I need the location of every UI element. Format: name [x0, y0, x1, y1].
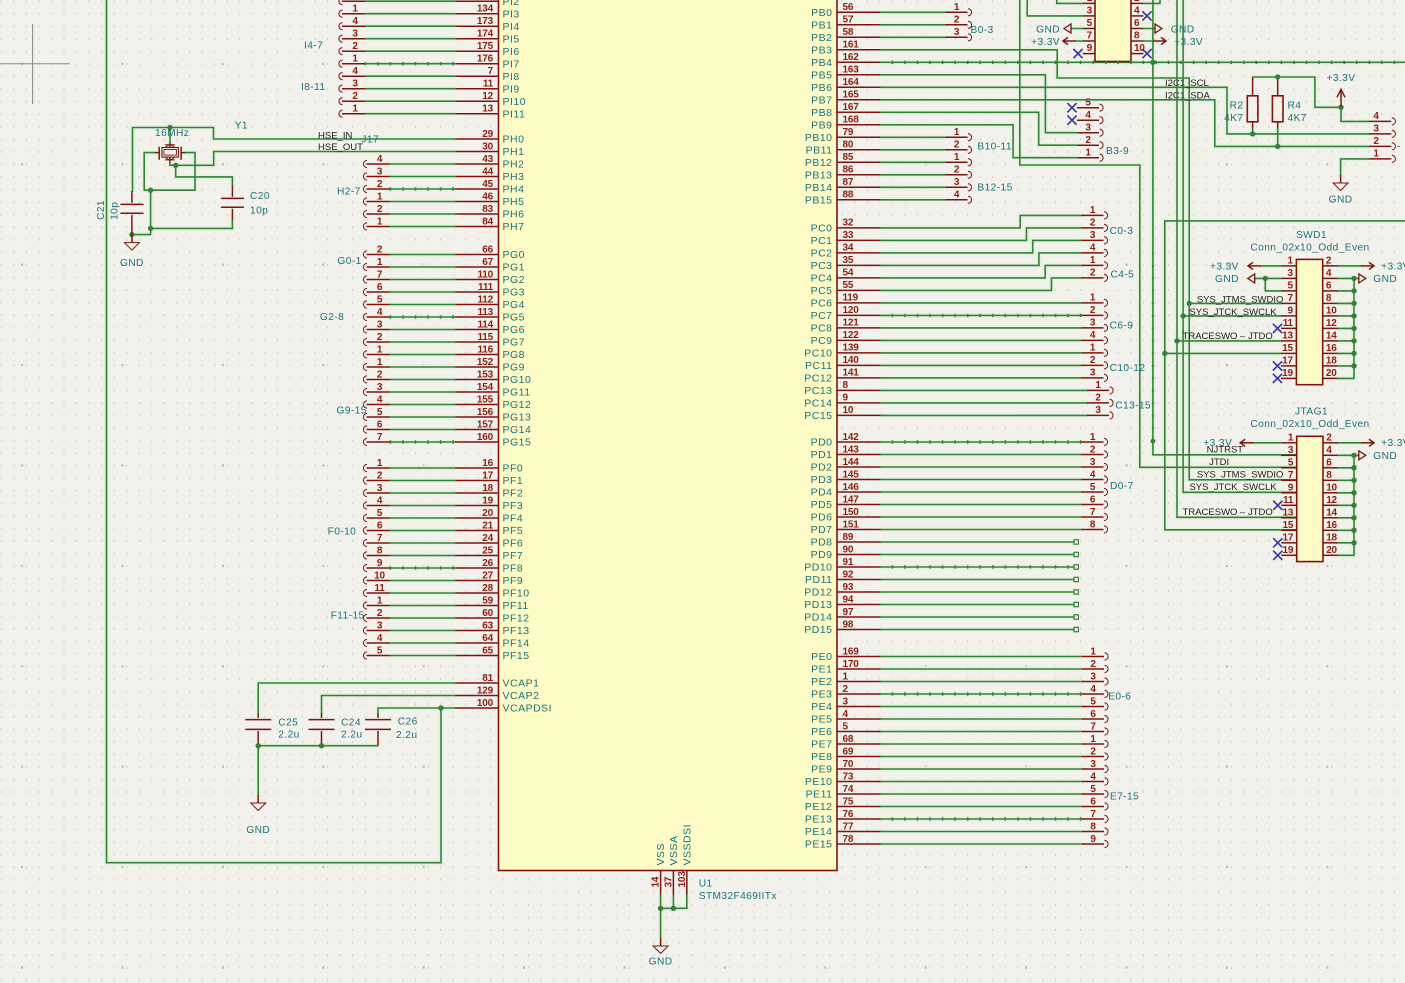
svg-text:25: 25 [482, 545, 493, 556]
svg-text:PF1: PF1 [503, 475, 524, 487]
svg-text:PG15: PG15 [503, 437, 532, 449]
svg-text:8: 8 [1090, 519, 1096, 530]
svg-text:13: 13 [482, 104, 493, 115]
svg-text:32: 32 [843, 218, 854, 229]
svg-text:154: 154 [477, 382, 494, 393]
svg-text:2: 2 [1090, 268, 1096, 279]
svg-text:3: 3 [1090, 318, 1096, 329]
svg-text:45: 45 [482, 179, 493, 190]
svg-text:4: 4 [843, 709, 849, 720]
svg-text:PC9: PC9 [811, 335, 833, 347]
svg-text:4: 4 [1134, 5, 1140, 16]
svg-text:PD11: PD11 [805, 574, 833, 586]
svg-text:C10-12: C10-12 [1110, 363, 1146, 374]
svg-text:165: 165 [843, 90, 860, 101]
svg-text:GND: GND [1036, 25, 1060, 36]
svg-text:G0-1: G0-1 [337, 256, 361, 267]
svg-text:89: 89 [843, 532, 854, 543]
svg-text:3: 3 [1373, 123, 1379, 134]
svg-text:15: 15 [1282, 520, 1293, 531]
svg-text:+3.3V: +3.3V [1210, 262, 1239, 273]
svg-text:SYS_JTMS_SWDIO: SYS_JTMS_SWDIO [1197, 294, 1284, 305]
svg-text:74: 74 [843, 784, 854, 795]
svg-text:PH7: PH7 [503, 221, 525, 233]
svg-text:PF3: PF3 [503, 500, 524, 512]
svg-text:11: 11 [374, 583, 385, 594]
svg-text:GND: GND [1373, 451, 1397, 462]
svg-text:PC3: PC3 [811, 260, 833, 272]
svg-text:3: 3 [1087, 5, 1093, 16]
svg-text:90: 90 [843, 544, 854, 555]
svg-text:3: 3 [1090, 457, 1096, 468]
svg-text:VSSDSI: VSSDSI [681, 824, 693, 866]
svg-text:C20: C20 [250, 191, 270, 202]
svg-text:92: 92 [843, 569, 854, 580]
svg-text:7: 7 [377, 533, 383, 544]
svg-text:PC12: PC12 [804, 373, 832, 385]
svg-text:PG3: PG3 [503, 287, 526, 299]
svg-text:2.2u: 2.2u [278, 729, 299, 740]
svg-text:97: 97 [843, 607, 854, 618]
svg-text:HSE_IN: HSE_IN [318, 130, 352, 141]
svg-text:73: 73 [843, 771, 854, 782]
svg-text:PE12: PE12 [805, 801, 833, 813]
svg-text:16MHz: 16MHz [155, 128, 189, 139]
svg-text:3: 3 [352, 29, 358, 40]
svg-text:4: 4 [1373, 111, 1379, 122]
svg-text:PD15: PD15 [804, 624, 832, 636]
svg-text:115: 115 [477, 332, 493, 343]
svg-text:169: 169 [843, 646, 860, 657]
svg-text:I2C1_SDA: I2C1_SDA [1165, 90, 1211, 101]
svg-text:30: 30 [482, 141, 493, 152]
svg-text:12: 12 [1326, 318, 1337, 329]
svg-text:16: 16 [482, 458, 493, 469]
svg-text:D0-7: D0-7 [1110, 481, 1134, 492]
svg-text:3: 3 [1090, 759, 1096, 770]
svg-text:PF7: PF7 [503, 550, 524, 562]
svg-text:PG2: PG2 [503, 274, 526, 286]
svg-text:129: 129 [477, 685, 494, 696]
svg-text:PI7: PI7 [503, 58, 520, 70]
svg-text:114: 114 [477, 319, 493, 330]
svg-text:I4-7: I4-7 [304, 41, 323, 52]
svg-text:PC5: PC5 [811, 285, 833, 297]
svg-text:29: 29 [482, 129, 493, 140]
svg-text:PE8: PE8 [811, 751, 832, 763]
svg-text:Y1: Y1 [235, 121, 248, 132]
svg-text:4: 4 [352, 16, 358, 27]
svg-text:7: 7 [1087, 31, 1093, 42]
svg-text:1: 1 [1090, 734, 1096, 745]
svg-text:PD10: PD10 [804, 562, 832, 574]
svg-text:SYS_JTCK_SWCLK: SYS_JTCK_SWCLK [1189, 307, 1277, 318]
svg-text:PB14: PB14 [805, 182, 833, 194]
svg-text:140: 140 [843, 355, 860, 366]
svg-text:1: 1 [377, 458, 383, 469]
svg-text:100: 100 [477, 698, 494, 709]
svg-text:142: 142 [843, 432, 860, 443]
svg-text:PC10: PC10 [804, 348, 832, 360]
svg-text:24: 24 [482, 533, 493, 544]
svg-text:C0-3: C0-3 [1110, 226, 1134, 237]
svg-text:76: 76 [843, 809, 854, 820]
svg-text:33: 33 [843, 230, 854, 241]
svg-text:170: 170 [843, 659, 860, 670]
svg-text:4: 4 [377, 633, 383, 644]
svg-text:43: 43 [482, 154, 493, 165]
svg-text:19: 19 [482, 495, 493, 506]
svg-text:C4-5: C4-5 [1111, 269, 1135, 280]
svg-text:2: 2 [377, 332, 383, 343]
svg-text:2.2u: 2.2u [396, 730, 417, 741]
svg-text:PD8: PD8 [811, 537, 833, 549]
svg-text:150: 150 [843, 507, 860, 518]
svg-text:8: 8 [843, 380, 849, 391]
svg-text:1: 1 [1087, 0, 1093, 4]
svg-text:U1: U1 [699, 879, 713, 890]
svg-text:1: 1 [377, 357, 383, 368]
svg-text:PC13: PC13 [804, 385, 832, 397]
svg-text:8: 8 [1326, 470, 1332, 481]
svg-text:156: 156 [477, 407, 494, 418]
svg-text:PH2: PH2 [503, 159, 525, 171]
svg-text:1: 1 [377, 216, 383, 227]
svg-text:77: 77 [843, 821, 854, 832]
svg-text:2: 2 [352, 91, 358, 102]
svg-text:2: 2 [1090, 218, 1096, 229]
svg-text:R4: R4 [1288, 101, 1302, 112]
svg-text:19: 19 [1282, 545, 1293, 556]
svg-text:PD1: PD1 [811, 449, 833, 461]
svg-text:44: 44 [482, 166, 493, 177]
svg-text:GND: GND [1329, 195, 1353, 206]
svg-text:2: 2 [1090, 659, 1096, 670]
svg-text:2: 2 [1373, 136, 1379, 147]
svg-text:116: 116 [477, 344, 493, 355]
svg-text:PD5: PD5 [811, 499, 833, 511]
svg-text:B3-9: B3-9 [1106, 146, 1129, 157]
svg-text:C26: C26 [398, 717, 418, 728]
svg-text:3: 3 [843, 696, 849, 707]
svg-text:PE6: PE6 [811, 726, 832, 738]
svg-text:4K7: 4K7 [1288, 113, 1307, 124]
svg-text:PI6: PI6 [503, 46, 520, 58]
svg-text:PE11: PE11 [806, 789, 833, 801]
svg-text:PE10: PE10 [805, 776, 833, 788]
svg-text:PF4: PF4 [503, 513, 524, 525]
svg-text:1: 1 [954, 152, 960, 163]
svg-text:PG13: PG13 [503, 412, 532, 424]
svg-text:11: 11 [483, 79, 494, 90]
svg-text:55: 55 [843, 280, 854, 291]
svg-text:9: 9 [1288, 482, 1294, 493]
svg-text:+3.3V: +3.3V [1381, 438, 1405, 449]
svg-text:3: 3 [377, 166, 383, 177]
svg-text:2: 2 [1095, 393, 1101, 404]
svg-text:3: 3 [377, 382, 383, 393]
svg-text:1: 1 [1085, 148, 1091, 159]
svg-text:PB2: PB2 [811, 32, 832, 44]
svg-text:69: 69 [843, 746, 854, 757]
svg-text:GND: GND [246, 825, 270, 836]
svg-text:5: 5 [1087, 18, 1093, 29]
svg-text:PF5: PF5 [503, 525, 524, 537]
svg-text:4: 4 [352, 66, 358, 77]
svg-text:PE13: PE13 [805, 814, 833, 826]
svg-text:18: 18 [1326, 532, 1337, 543]
svg-text:9: 9 [1288, 305, 1294, 316]
svg-text:GND: GND [1171, 25, 1195, 36]
svg-text:GND: GND [1215, 274, 1239, 285]
svg-text:PC15: PC15 [804, 410, 832, 422]
svg-text:PH1: PH1 [503, 146, 525, 158]
svg-text:PG4: PG4 [503, 299, 526, 311]
svg-text:63: 63 [482, 620, 493, 631]
svg-text:168: 168 [843, 115, 860, 126]
svg-text:6: 6 [1326, 457, 1332, 468]
svg-text:JTDI: JTDI [1209, 457, 1229, 468]
svg-text:6: 6 [377, 282, 383, 293]
svg-text:56: 56 [843, 2, 854, 13]
svg-text:10: 10 [843, 405, 854, 416]
svg-text:GND: GND [1373, 274, 1397, 285]
svg-text:10: 10 [374, 570, 385, 581]
svg-text:1: 1 [1095, 380, 1101, 391]
svg-text:4: 4 [377, 307, 383, 318]
svg-text:PE7: PE7 [811, 739, 832, 751]
svg-text:PF8: PF8 [503, 563, 524, 575]
svg-text:46: 46 [482, 191, 493, 202]
svg-text:68: 68 [843, 734, 854, 745]
svg-text:152: 152 [477, 357, 494, 368]
svg-text:6: 6 [1134, 18, 1140, 29]
svg-text:4: 4 [1326, 445, 1332, 456]
svg-text:PI5: PI5 [503, 33, 520, 45]
svg-text:134: 134 [477, 4, 494, 15]
svg-text:4: 4 [1090, 771, 1096, 782]
svg-text:84: 84 [482, 216, 493, 227]
svg-text:TRACESWO – JTDO: TRACESWO – JTDO [1183, 507, 1273, 518]
svg-text:1: 1 [377, 344, 383, 355]
svg-text:26: 26 [482, 558, 493, 569]
svg-text:C13-15: C13-15 [1115, 401, 1151, 412]
svg-text:1: 1 [352, 104, 358, 115]
svg-text:5: 5 [1288, 280, 1294, 291]
svg-text:PE1: PE1 [811, 664, 832, 676]
svg-text:17: 17 [1282, 532, 1293, 543]
svg-text:151: 151 [843, 519, 860, 530]
svg-text:175: 175 [477, 41, 494, 52]
svg-text:7: 7 [488, 66, 494, 77]
svg-text:3: 3 [1288, 268, 1294, 279]
svg-text:+3.3V: +3.3V [1381, 262, 1405, 273]
svg-text:2: 2 [1134, 0, 1140, 4]
svg-text:14: 14 [1326, 330, 1337, 341]
svg-text:9: 9 [843, 393, 849, 404]
svg-text:5: 5 [377, 645, 383, 656]
svg-text:4: 4 [954, 190, 960, 201]
svg-text:PB9: PB9 [811, 119, 832, 131]
svg-text:PF15: PF15 [503, 650, 530, 662]
svg-text:3: 3 [1095, 405, 1101, 416]
svg-text:PB11: PB11 [806, 144, 833, 156]
svg-text:PD13: PD13 [804, 599, 832, 611]
svg-text:70: 70 [843, 759, 854, 770]
svg-text:PG9: PG9 [503, 362, 526, 374]
svg-text:STM32F469IITx: STM32F469IITx [699, 891, 777, 902]
svg-text:85: 85 [843, 152, 854, 163]
svg-text:1: 1 [1090, 432, 1096, 443]
svg-text:VSS: VSS [655, 843, 667, 866]
svg-text:157: 157 [477, 419, 494, 430]
svg-text:1: 1 [377, 595, 383, 606]
svg-text:PG1: PG1 [503, 262, 526, 274]
svg-text:9: 9 [377, 558, 383, 569]
svg-text:PB1: PB1 [811, 19, 832, 31]
svg-text:94: 94 [843, 594, 854, 605]
svg-text:6: 6 [377, 520, 383, 531]
svg-text:5: 5 [1090, 482, 1096, 493]
svg-text:PG10: PG10 [503, 374, 532, 386]
svg-text:PD14: PD14 [804, 612, 832, 624]
svg-text:144: 144 [843, 457, 860, 468]
svg-text:I8-11: I8-11 [301, 82, 325, 93]
svg-text:2: 2 [377, 179, 383, 190]
svg-text:PG14: PG14 [503, 424, 532, 436]
svg-text:7: 7 [1288, 470, 1294, 481]
svg-text:2: 2 [377, 470, 383, 481]
svg-text:1: 1 [1373, 148, 1379, 159]
svg-text:79: 79 [843, 127, 854, 138]
svg-text:PB5: PB5 [811, 69, 832, 81]
svg-text:PD6: PD6 [811, 512, 833, 524]
svg-text:6: 6 [377, 419, 383, 430]
svg-text:7: 7 [1288, 293, 1294, 304]
svg-text:+3.3V: +3.3V [1174, 37, 1203, 48]
svg-text:20: 20 [1326, 545, 1337, 556]
svg-text:7: 7 [1090, 809, 1096, 820]
svg-text:1: 1 [352, 54, 358, 65]
svg-text:8: 8 [377, 545, 383, 556]
svg-text:20: 20 [482, 508, 493, 519]
svg-text:2: 2 [1090, 746, 1096, 757]
svg-text:1: 1 [1090, 293, 1096, 304]
svg-text:SYS_JTCK_SWCLK: SYS_JTCK_SWCLK [1189, 482, 1277, 493]
svg-text:12: 12 [482, 91, 493, 102]
svg-text:-: - [1397, 141, 1400, 152]
svg-text:5: 5 [1288, 457, 1294, 468]
svg-text:21: 21 [482, 520, 493, 531]
svg-text:174: 174 [477, 29, 494, 40]
svg-text:5: 5 [377, 407, 383, 418]
svg-text:13: 13 [1282, 507, 1293, 518]
svg-text:F11-15: F11-15 [331, 610, 365, 621]
svg-text:PI10: PI10 [503, 96, 527, 108]
svg-text:16: 16 [1326, 343, 1337, 354]
svg-text:12: 12 [1326, 495, 1337, 506]
svg-text:PG8: PG8 [503, 349, 526, 361]
svg-text:4: 4 [1090, 330, 1096, 341]
svg-text:139: 139 [843, 343, 860, 354]
svg-text:E7-15: E7-15 [1110, 792, 1139, 803]
svg-text:1: 1 [377, 257, 383, 268]
svg-text:B10-11: B10-11 [977, 142, 1012, 153]
svg-text:C24: C24 [341, 717, 361, 728]
svg-text:145: 145 [843, 469, 860, 480]
svg-text:JTAG1: JTAG1 [1295, 407, 1328, 418]
svg-text:PC11: PC11 [805, 360, 833, 372]
svg-text:B12-15: B12-15 [977, 182, 1012, 193]
svg-text:C21: C21 [96, 200, 107, 220]
svg-text:2: 2 [377, 608, 383, 619]
svg-text:9: 9 [1090, 834, 1096, 845]
svg-text:160: 160 [477, 432, 494, 443]
svg-text:7: 7 [1090, 721, 1096, 732]
svg-text:PC14: PC14 [804, 398, 832, 410]
svg-text:2: 2 [1326, 255, 1332, 266]
svg-text:2: 2 [377, 244, 383, 255]
svg-text:15: 15 [1282, 343, 1293, 354]
svg-text:PG6: PG6 [503, 324, 526, 336]
svg-text:VCAPDSI: VCAPDSI [503, 703, 553, 715]
svg-text:3: 3 [1090, 368, 1096, 379]
svg-text:2: 2 [1090, 444, 1096, 455]
svg-text:PG0: PG0 [503, 249, 526, 261]
svg-text:3: 3 [377, 319, 383, 330]
svg-text:75: 75 [843, 796, 854, 807]
svg-text:PD3: PD3 [811, 474, 833, 486]
svg-text:PE5: PE5 [811, 714, 832, 726]
svg-text:PD12: PD12 [804, 587, 832, 599]
svg-text:5: 5 [1090, 784, 1096, 795]
svg-text:119: 119 [843, 293, 859, 304]
svg-text:PH5: PH5 [503, 196, 525, 208]
svg-text:65: 65 [482, 645, 493, 656]
svg-text:1: 1 [1090, 646, 1096, 657]
svg-text:E0-6: E0-6 [1108, 691, 1131, 702]
svg-text:7: 7 [377, 432, 383, 443]
svg-text:PF12: PF12 [503, 613, 530, 625]
svg-text:2: 2 [1090, 355, 1096, 366]
svg-text:PG5: PG5 [503, 312, 526, 324]
svg-text:5: 5 [1090, 696, 1096, 707]
svg-text:F0-10: F0-10 [328, 527, 357, 538]
svg-text:111: 111 [478, 282, 494, 293]
svg-text:103: 103 [677, 871, 688, 888]
svg-text:PD2: PD2 [811, 462, 833, 474]
svg-text:Conn_02x10_Odd_Even: Conn_02x10_Odd_Even [1250, 243, 1369, 254]
svg-text:8: 8 [1090, 821, 1096, 832]
svg-text:PB15: PB15 [805, 194, 833, 206]
svg-text:4: 4 [1085, 110, 1091, 121]
svg-text:2: 2 [1085, 135, 1091, 146]
svg-text:155: 155 [477, 394, 494, 405]
svg-text:34: 34 [843, 243, 854, 254]
svg-text:17: 17 [1282, 355, 1293, 366]
svg-text:PE9: PE9 [811, 764, 832, 776]
svg-text:R2: R2 [1230, 101, 1244, 112]
svg-text:PH6: PH6 [503, 209, 525, 221]
svg-text:PH3: PH3 [503, 171, 525, 183]
svg-text:PF0: PF0 [503, 463, 524, 475]
svg-text:6: 6 [1090, 494, 1096, 505]
svg-text:PB6: PB6 [811, 82, 832, 94]
svg-text:PD9: PD9 [811, 549, 833, 561]
svg-text:3: 3 [954, 27, 960, 38]
svg-text:67: 67 [482, 257, 493, 268]
svg-text:37: 37 [663, 876, 674, 887]
